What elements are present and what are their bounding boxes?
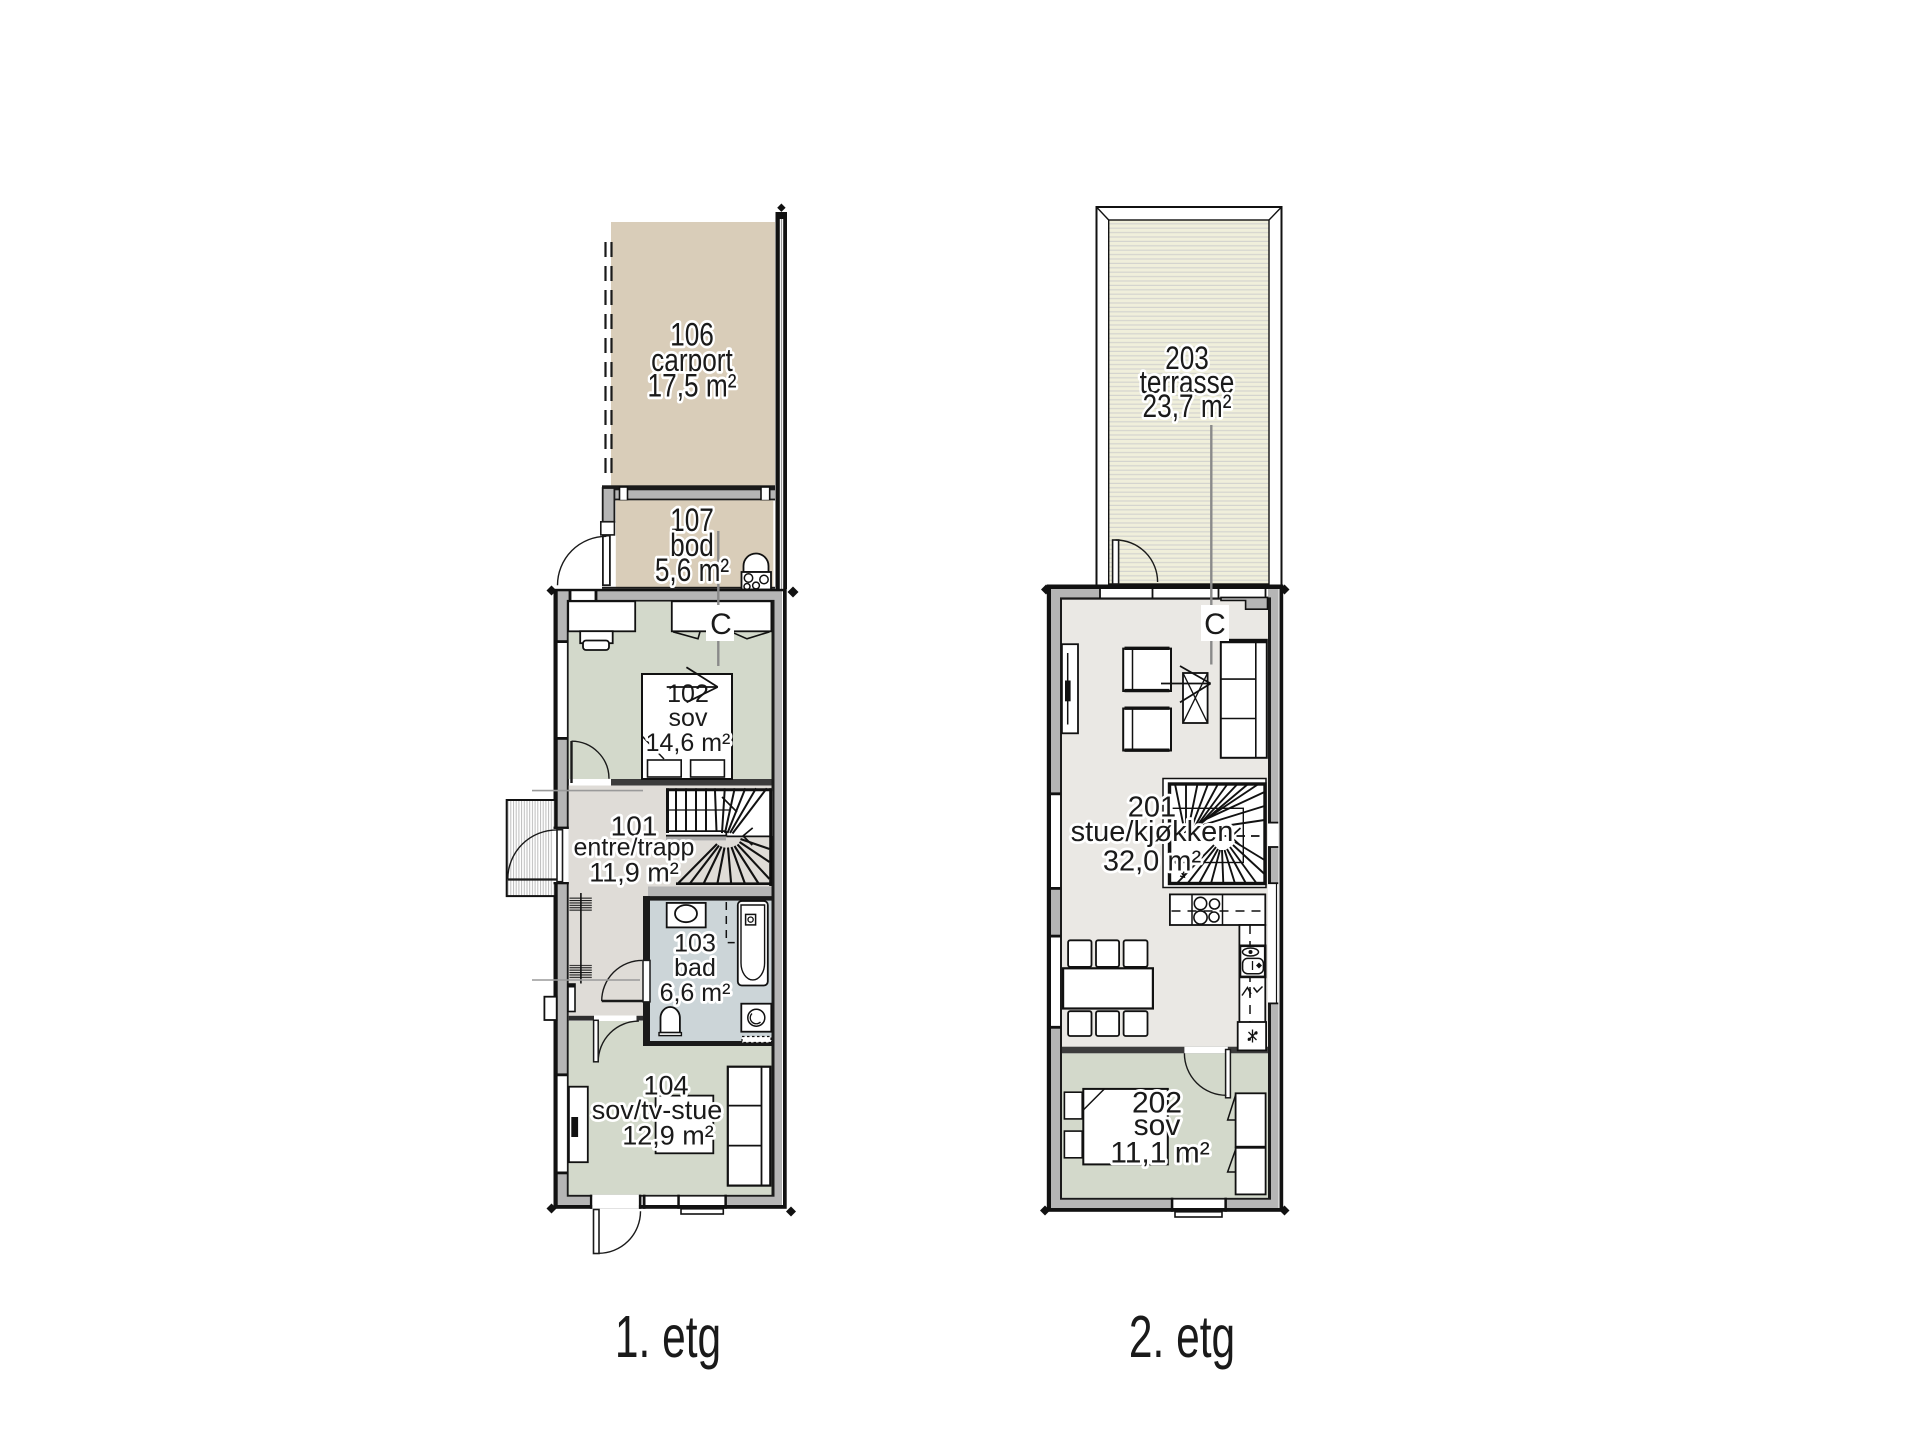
svg-text:6,6 m²: 6,6 m² bbox=[660, 979, 731, 1007]
svg-text:sov: sov bbox=[669, 704, 708, 732]
svg-text:17,5 m²: 17,5 m² bbox=[648, 369, 737, 404]
svg-text:bad: bad bbox=[674, 954, 716, 982]
svg-text:14,6 m²: 14,6 m² bbox=[646, 729, 731, 757]
svg-text:C: C bbox=[710, 608, 732, 641]
svg-text:5,6 m²: 5,6 m² bbox=[655, 554, 730, 589]
svg-text:2. etg: 2. etg bbox=[1129, 1303, 1235, 1370]
svg-text:stue/kjøkken: stue/kjøkken bbox=[1071, 816, 1234, 848]
svg-text:11,9 m²: 11,9 m² bbox=[589, 858, 679, 888]
svg-text:C: C bbox=[1204, 608, 1226, 641]
svg-text:11,1 m²: 11,1 m² bbox=[1110, 1137, 1209, 1170]
svg-text:23,7 m²: 23,7 m² bbox=[1143, 390, 1232, 425]
svg-text:1. etg: 1. etg bbox=[615, 1303, 721, 1370]
svg-text:32,0 m²: 32,0 m² bbox=[1103, 846, 1202, 878]
svg-text:12,9 m²: 12,9 m² bbox=[622, 1121, 714, 1151]
